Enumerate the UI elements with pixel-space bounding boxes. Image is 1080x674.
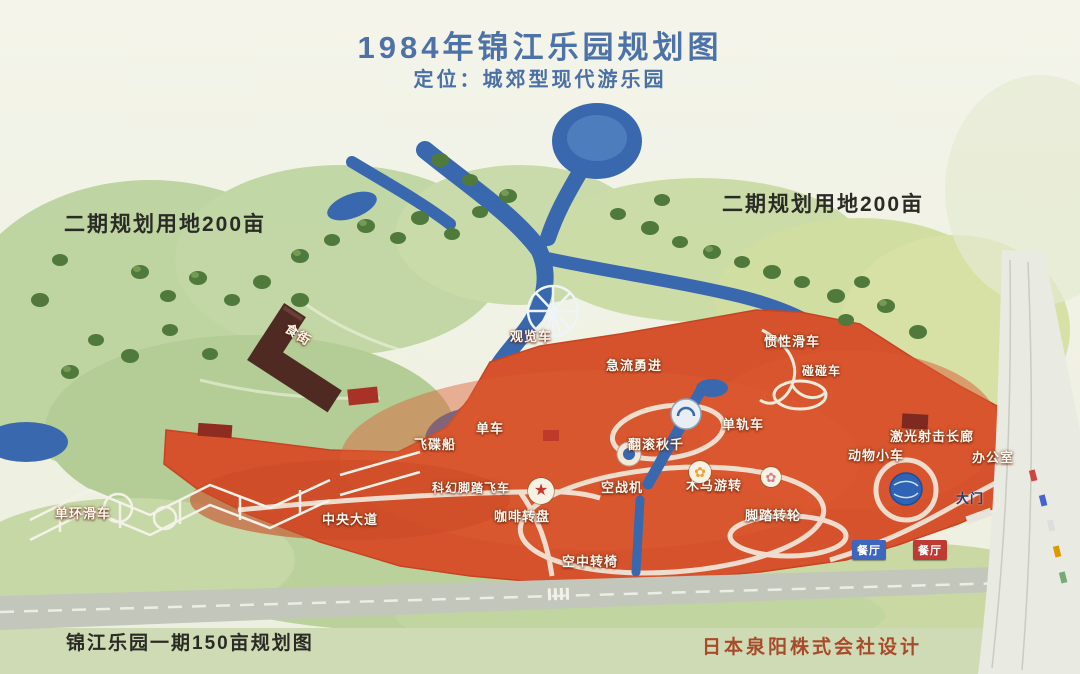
park-map: 1984年锦江乐园规划图 定位：城郊型现代游乐园 二期规划用地200亩 二期规划… bbox=[0, 0, 1080, 674]
globe-fountain-icon bbox=[890, 473, 922, 505]
phase2-left-annotation: 二期规划用地200亩 bbox=[64, 208, 266, 238]
flower-icon: ✿ bbox=[761, 467, 781, 487]
label-main-gate: 大门 bbox=[956, 488, 984, 507]
flower-icon: ✿ bbox=[689, 461, 711, 483]
label-roller-coaster: 惯性滑车 bbox=[764, 331, 820, 350]
page-subtitle: 定位：城郊型现代游乐园 bbox=[0, 63, 1080, 92]
label-pedal-sky-bike: 科幻脚踏飞车 bbox=[432, 479, 510, 496]
label-bumper-cars: 碰碰车 bbox=[802, 362, 841, 379]
label-bicycle: 单车 bbox=[476, 418, 504, 437]
label-tumble-swing: 翻滚秋千 bbox=[628, 434, 684, 453]
page-title: 1984年锦江乐园规划图 bbox=[0, 22, 1080, 67]
label-air-fighter: 空战机 bbox=[601, 477, 643, 496]
star-plaza-icon: ★ bbox=[528, 478, 554, 504]
phase2-right-annotation: 二期规划用地200亩 bbox=[722, 188, 924, 218]
label-sky-chairs: 空中转椅 bbox=[562, 551, 618, 570]
designer-credit: 日本泉阳株式会社设计 bbox=[702, 632, 922, 659]
label-ufo-boat: 飞碟船 bbox=[414, 434, 456, 453]
label-animal-cars: 动物小车 bbox=[848, 445, 904, 464]
label-loop-coaster: 单环滑车 bbox=[55, 503, 111, 522]
restaurant-badge-blue: 餐厅 bbox=[852, 540, 886, 560]
label-pedal-wheel: 脚踏转轮 bbox=[745, 505, 801, 524]
label-coffee-cups: 咖啡转盘 bbox=[494, 506, 550, 525]
restaurant-badge-red: 餐厅 bbox=[913, 540, 947, 560]
label-laser-gallery: 激光射击长廊 bbox=[890, 426, 974, 445]
phase1-caption: 锦江乐园一期150亩规划图 bbox=[66, 628, 314, 655]
label-office: 办公室 bbox=[972, 447, 1014, 466]
label-log-flume: 急流勇进 bbox=[606, 355, 662, 374]
label-central-avenue: 中央大道 bbox=[322, 509, 378, 528]
label-ferris-wheel: 观览车 bbox=[510, 326, 552, 345]
label-monorail: 单轨车 bbox=[722, 414, 764, 433]
